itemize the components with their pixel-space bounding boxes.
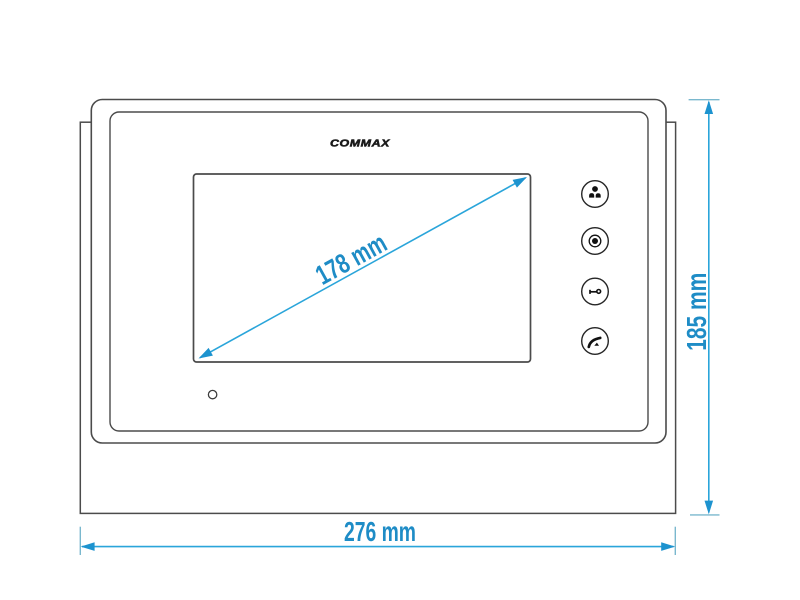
svg-text:COMMAX: COMMAX bbox=[330, 139, 391, 150]
svg-text:276 mm: 276 mm bbox=[344, 516, 416, 547]
svg-text:185 mm: 185 mm bbox=[681, 273, 712, 351]
